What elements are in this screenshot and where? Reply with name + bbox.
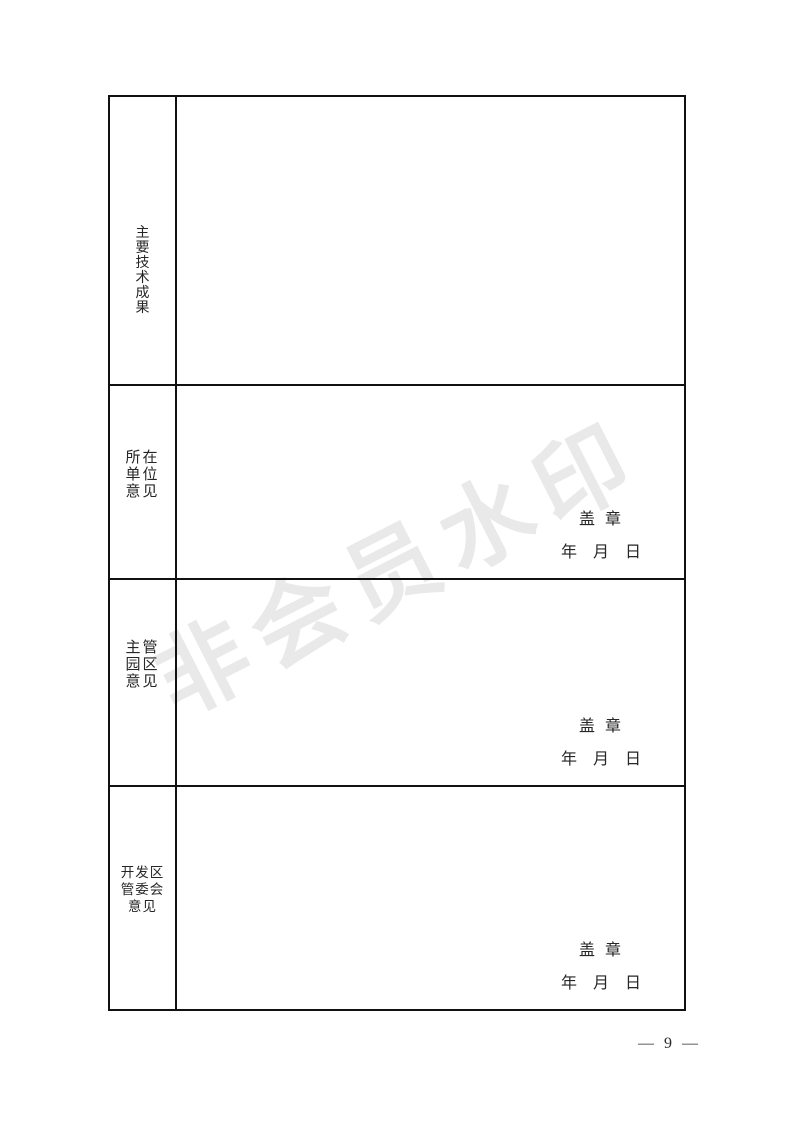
row-development-zone-committee-opinion: 开发区 管委会 意见 盖 章 年 月 日: [110, 787, 684, 1009]
label-char: 要: [136, 241, 150, 256]
approval-form-table: 主 要 技 术 成 果 所在 单位 意见 盖 章 年: [108, 95, 686, 1011]
row-label: 主管 园区 意见: [125, 640, 159, 691]
row-label: 主 要 技 术 成 果: [136, 226, 150, 316]
date-label: 年 月 日: [561, 969, 641, 993]
label-cell-development-zone-committee-opinion: 开发区 管委会 意见: [110, 787, 177, 1009]
row-main-technical-achievements: 主 要 技 术 成 果: [110, 97, 684, 386]
label-line: 所在: [125, 450, 159, 467]
label-line: 主管: [125, 640, 159, 657]
label-cell-park-opinion: 主管 园区 意见: [110, 580, 177, 785]
label-line: 意见: [125, 484, 159, 501]
label-char: 主: [136, 226, 150, 241]
row-label: 所在 单位 意见: [125, 450, 159, 501]
label-char: 果: [136, 301, 150, 316]
document-page: 非会员水印 主 要 技 术 成 果 所在 单位: [0, 0, 793, 1122]
label-line: 园区: [125, 657, 159, 674]
label-cell-main-technical-achievements: 主 要 技 术 成 果: [110, 97, 177, 384]
content-area-main-technical-achievements: [177, 97, 684, 384]
content-area-unit-opinion: 盖 章 年 月 日: [177, 386, 684, 578]
label-char: 成: [136, 286, 150, 301]
date-label: 年 月 日: [561, 745, 641, 769]
label-char: 术: [136, 271, 150, 286]
label-cell-unit-opinion: 所在 单位 意见: [110, 386, 177, 578]
stamp-label: 盖 章: [579, 505, 621, 529]
stamp-label: 盖 章: [579, 712, 621, 736]
content-area-development-zone-committee-opinion: 盖 章 年 月 日: [177, 787, 684, 1009]
label-char: 技: [136, 256, 150, 271]
row-label: 开发区 管委会 意见: [121, 864, 165, 915]
label-line: 意见: [125, 674, 159, 691]
label-line: 单位: [125, 467, 159, 484]
label-line: 管委会: [121, 881, 165, 898]
label-line: 开发区: [121, 864, 165, 881]
page-number: — 9 —: [638, 1035, 698, 1053]
stamp-label: 盖 章: [579, 936, 621, 960]
label-line: 意见: [121, 898, 165, 915]
content-area-park-opinion: 盖 章 年 月 日: [177, 580, 684, 785]
row-unit-opinion: 所在 单位 意见 盖 章 年 月 日: [110, 386, 684, 580]
row-park-opinion: 主管 园区 意见 盖 章 年 月 日: [110, 580, 684, 787]
date-label: 年 月 日: [561, 538, 641, 562]
